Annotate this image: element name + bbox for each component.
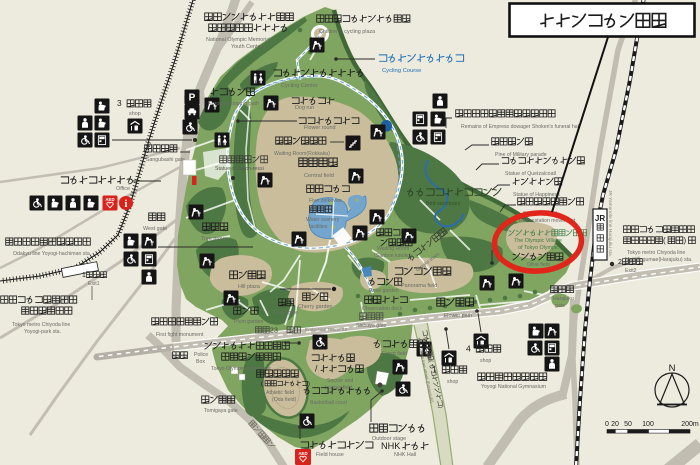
svg-text:Flower round: Flower round [304,125,335,131]
svg-text:Shibuya gate: Shibuya gate [356,323,386,329]
svg-text:20: 20 [611,421,619,428]
svg-text:Tomigaya gate: Tomigaya gate [204,408,238,414]
svg-text:West gate: West gate [143,226,167,232]
svg-text:JR Yamanote line Harajuku sta.: JR Yamanote line Harajuku sta. [607,190,613,257]
svg-text:P: P [189,92,196,103]
svg-text:Police: Police [194,352,208,358]
svg-text:Event field: Event field [382,351,407,357]
svg-text:2: 2 [618,259,622,266]
svg-text:Bird sanctuary: Bird sanctuary [426,201,461,207]
svg-text:Tokyo Olympic monument: Tokyo Olympic monument [211,366,271,372]
svg-text:of Tokyo Olympic: of Tokyo Olympic [518,245,559,251]
svg-text:Waiting Room: Waiting Room [377,246,409,252]
svg-text:gate: gate [555,303,565,309]
svg-text:Cherry garden: Cherry garden [298,304,332,310]
svg-text:0: 0 [605,421,609,428]
svg-text:): ) [308,380,310,387]
svg-text:Rose garden: Rose garden [369,288,399,294]
svg-text:shop: shop [447,379,458,385]
svg-text:4: 4 [466,343,471,353]
svg-text:National Olympic Memorial: National Olympic Memorial [206,37,270,43]
svg-text:i: i [125,199,128,210]
svg-text:Plum garden: Plum garden [234,319,264,325]
svg-text:Statue of Quetzalcoatl: Statue of Quetzalcoatl [505,171,556,177]
svg-text:NHK Hall: NHK Hall [394,452,416,458]
svg-text:Dog run: Dog run [295,105,314,111]
svg-text:AED: AED [105,197,114,202]
svg-text:Central field: Central field [304,173,334,179]
svg-text:Soccer and: Soccer and [327,378,353,384]
svg-text:100: 100 [642,421,654,428]
svg-text:1: 1 [432,364,437,374]
svg-text:Hill plaza: Hill plaza [238,284,260,290]
svg-text:Box: Box [196,359,205,365]
svg-text:): ) [684,236,687,245]
svg-text:Five zelkovas: Five zelkovas [309,198,342,204]
svg-text:Pine of Military parade: Pine of Military parade [495,152,547,158]
svg-text:Athletic field: Athletic field [266,390,294,396]
svg-text:facilities: facilities [309,224,328,230]
svg-text:Water scenery: Water scenery [306,217,340,223]
svg-text:Field house: Field house [316,452,344,458]
svg-text:Youth Center: Youth Center [231,44,262,50]
svg-text:Panorama field: Panorama field [401,283,437,289]
svg-text:Office: Office [116,186,130,192]
svg-text:23: 23 [270,325,278,334]
svg-text:Remains of Empress dowager Sho: Remains of Empress dowager Shoken's fune… [461,124,580,130]
svg-text:N: N [669,363,676,374]
svg-text:Observation deck: Observation deck [362,306,403,312]
svg-text:Statue of Juyon-ressi: Statue of Juyon-ressi [215,166,264,172]
svg-text:South gate: South gate [273,310,298,316]
svg-text:shop: shop [480,358,491,364]
svg-text:The Olympic Village: The Olympic Village [514,238,562,244]
svg-text:Korogari sloping path: Korogari sloping path [208,101,259,107]
svg-text:Flower path: Flower path [444,313,472,319]
svg-text:AED: AED [298,451,307,456]
svg-text:Basketball court: Basketball court [310,400,347,406]
svg-text:Harajuku: Harajuku [553,296,574,302]
svg-text:Statue of Happiness: Statue of Happiness [513,192,560,198]
svg-text:Embusion Route 23: Embusion Route 23 [305,327,347,333]
svg-text:Cycling Course: Cycling Course [382,68,421,74]
svg-text:Olive field: Olive field [527,262,550,268]
svg-text:Cycling Center: Cycling Center [281,83,318,89]
svg-text:(Oda field): (Oda field) [272,397,296,403]
svg-text:Exit1: Exit1 [88,281,100,287]
svg-text:Yoyogi National Gymnasium: Yoyogi National Gymnasium [481,384,546,390]
svg-text:Sangubashi gate: Sangubashi gate [146,157,185,163]
svg-text:Waiting Room(Rokkaku): Waiting Room(Rokkaku) [274,151,330,157]
svg-text:First fight monument: First fight monument [156,332,204,338]
svg-text:NHK: NHK [381,441,401,451]
svg-text:Tree grove: Tree grove [201,236,227,242]
svg-text:200m: 200m [681,421,699,428]
svg-text:50: 50 [624,421,632,428]
svg-text:Exit2: Exit2 [625,268,637,274]
svg-text:Children's cycling plaza: Children's cycling plaza [319,29,375,35]
svg-text:(Sanbon kinoko): (Sanbon kinoko) [374,253,412,259]
svg-text:shop: shop [129,111,141,117]
svg-text:(: ( [663,236,666,245]
svg-text:Tokyo metro Chiyoda line: Tokyo metro Chiyoda line [12,322,70,328]
svg-text:3: 3 [117,98,122,108]
svg-text:Yoyogi-park sta.: Yoyogi-park sta. [24,329,61,335]
svg-text:JR: JR [595,214,605,223]
svg-text:Tokyo metro Chiyoda line: Tokyo metro Chiyoda line [627,250,685,256]
svg-text:1: 1 [82,272,86,279]
svg-text:Odakyu line Yoyogi-hachiman st: Odakyu line Yoyogi-hachiman sta. [13,251,91,257]
